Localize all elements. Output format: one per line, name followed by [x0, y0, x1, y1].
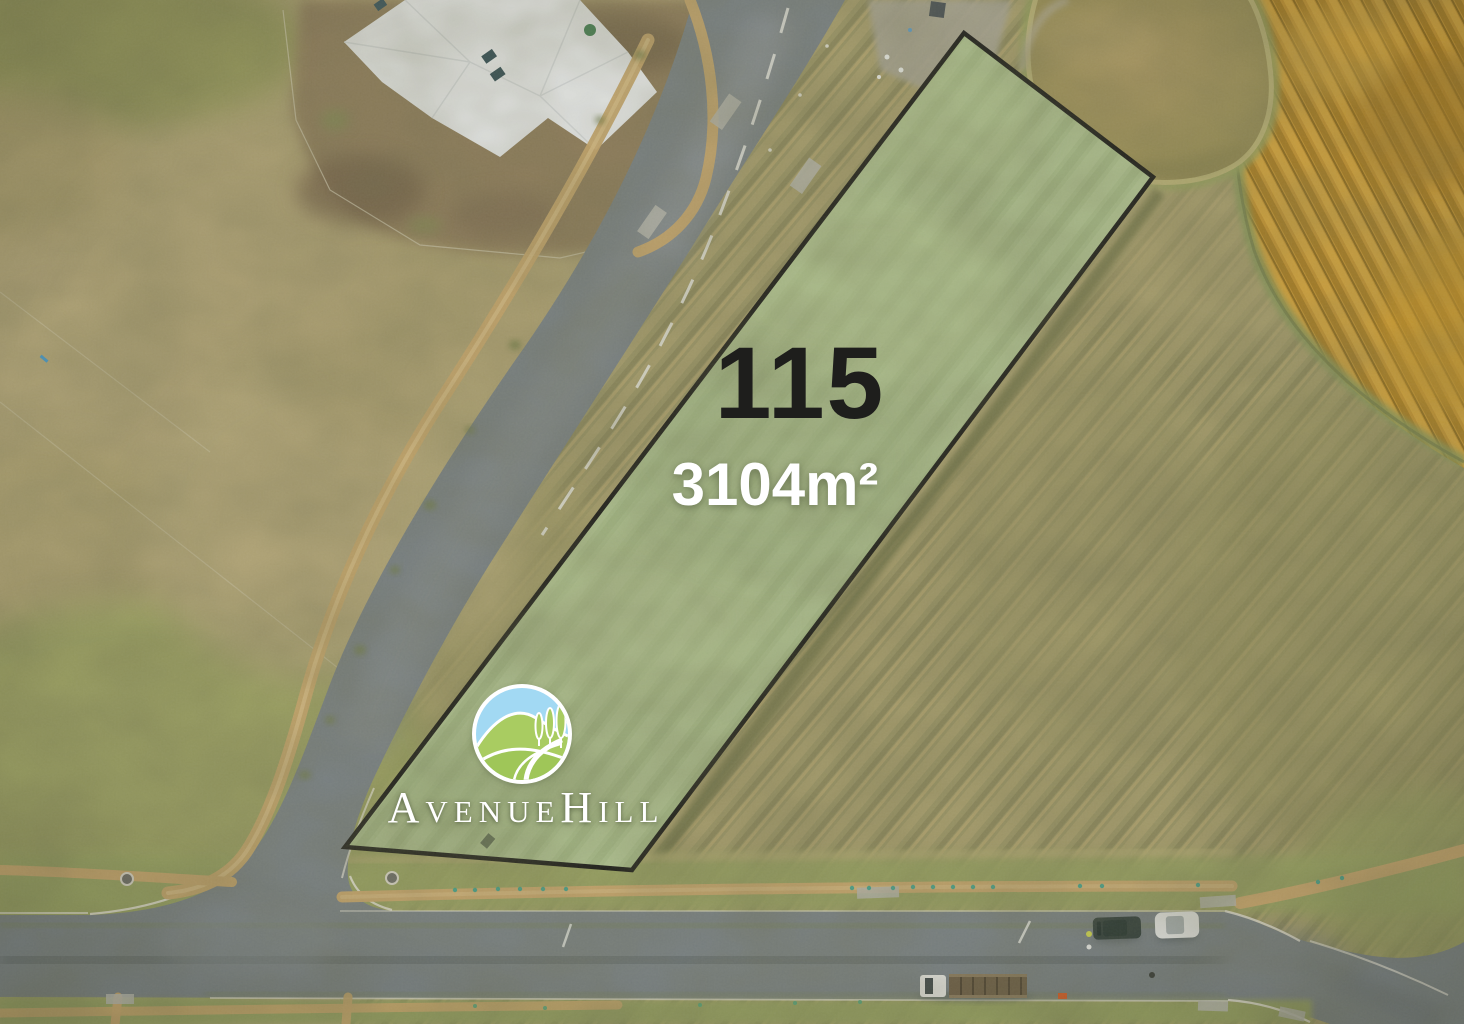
lot-area-label: 3104m²	[625, 455, 925, 515]
aerial-photo: 115 3104m²	[0, 0, 1464, 1024]
avenuehill-logo-icon	[466, 678, 578, 790]
lot-number-label: 115	[700, 332, 900, 434]
brand-name: AvenueHill	[336, 786, 716, 830]
